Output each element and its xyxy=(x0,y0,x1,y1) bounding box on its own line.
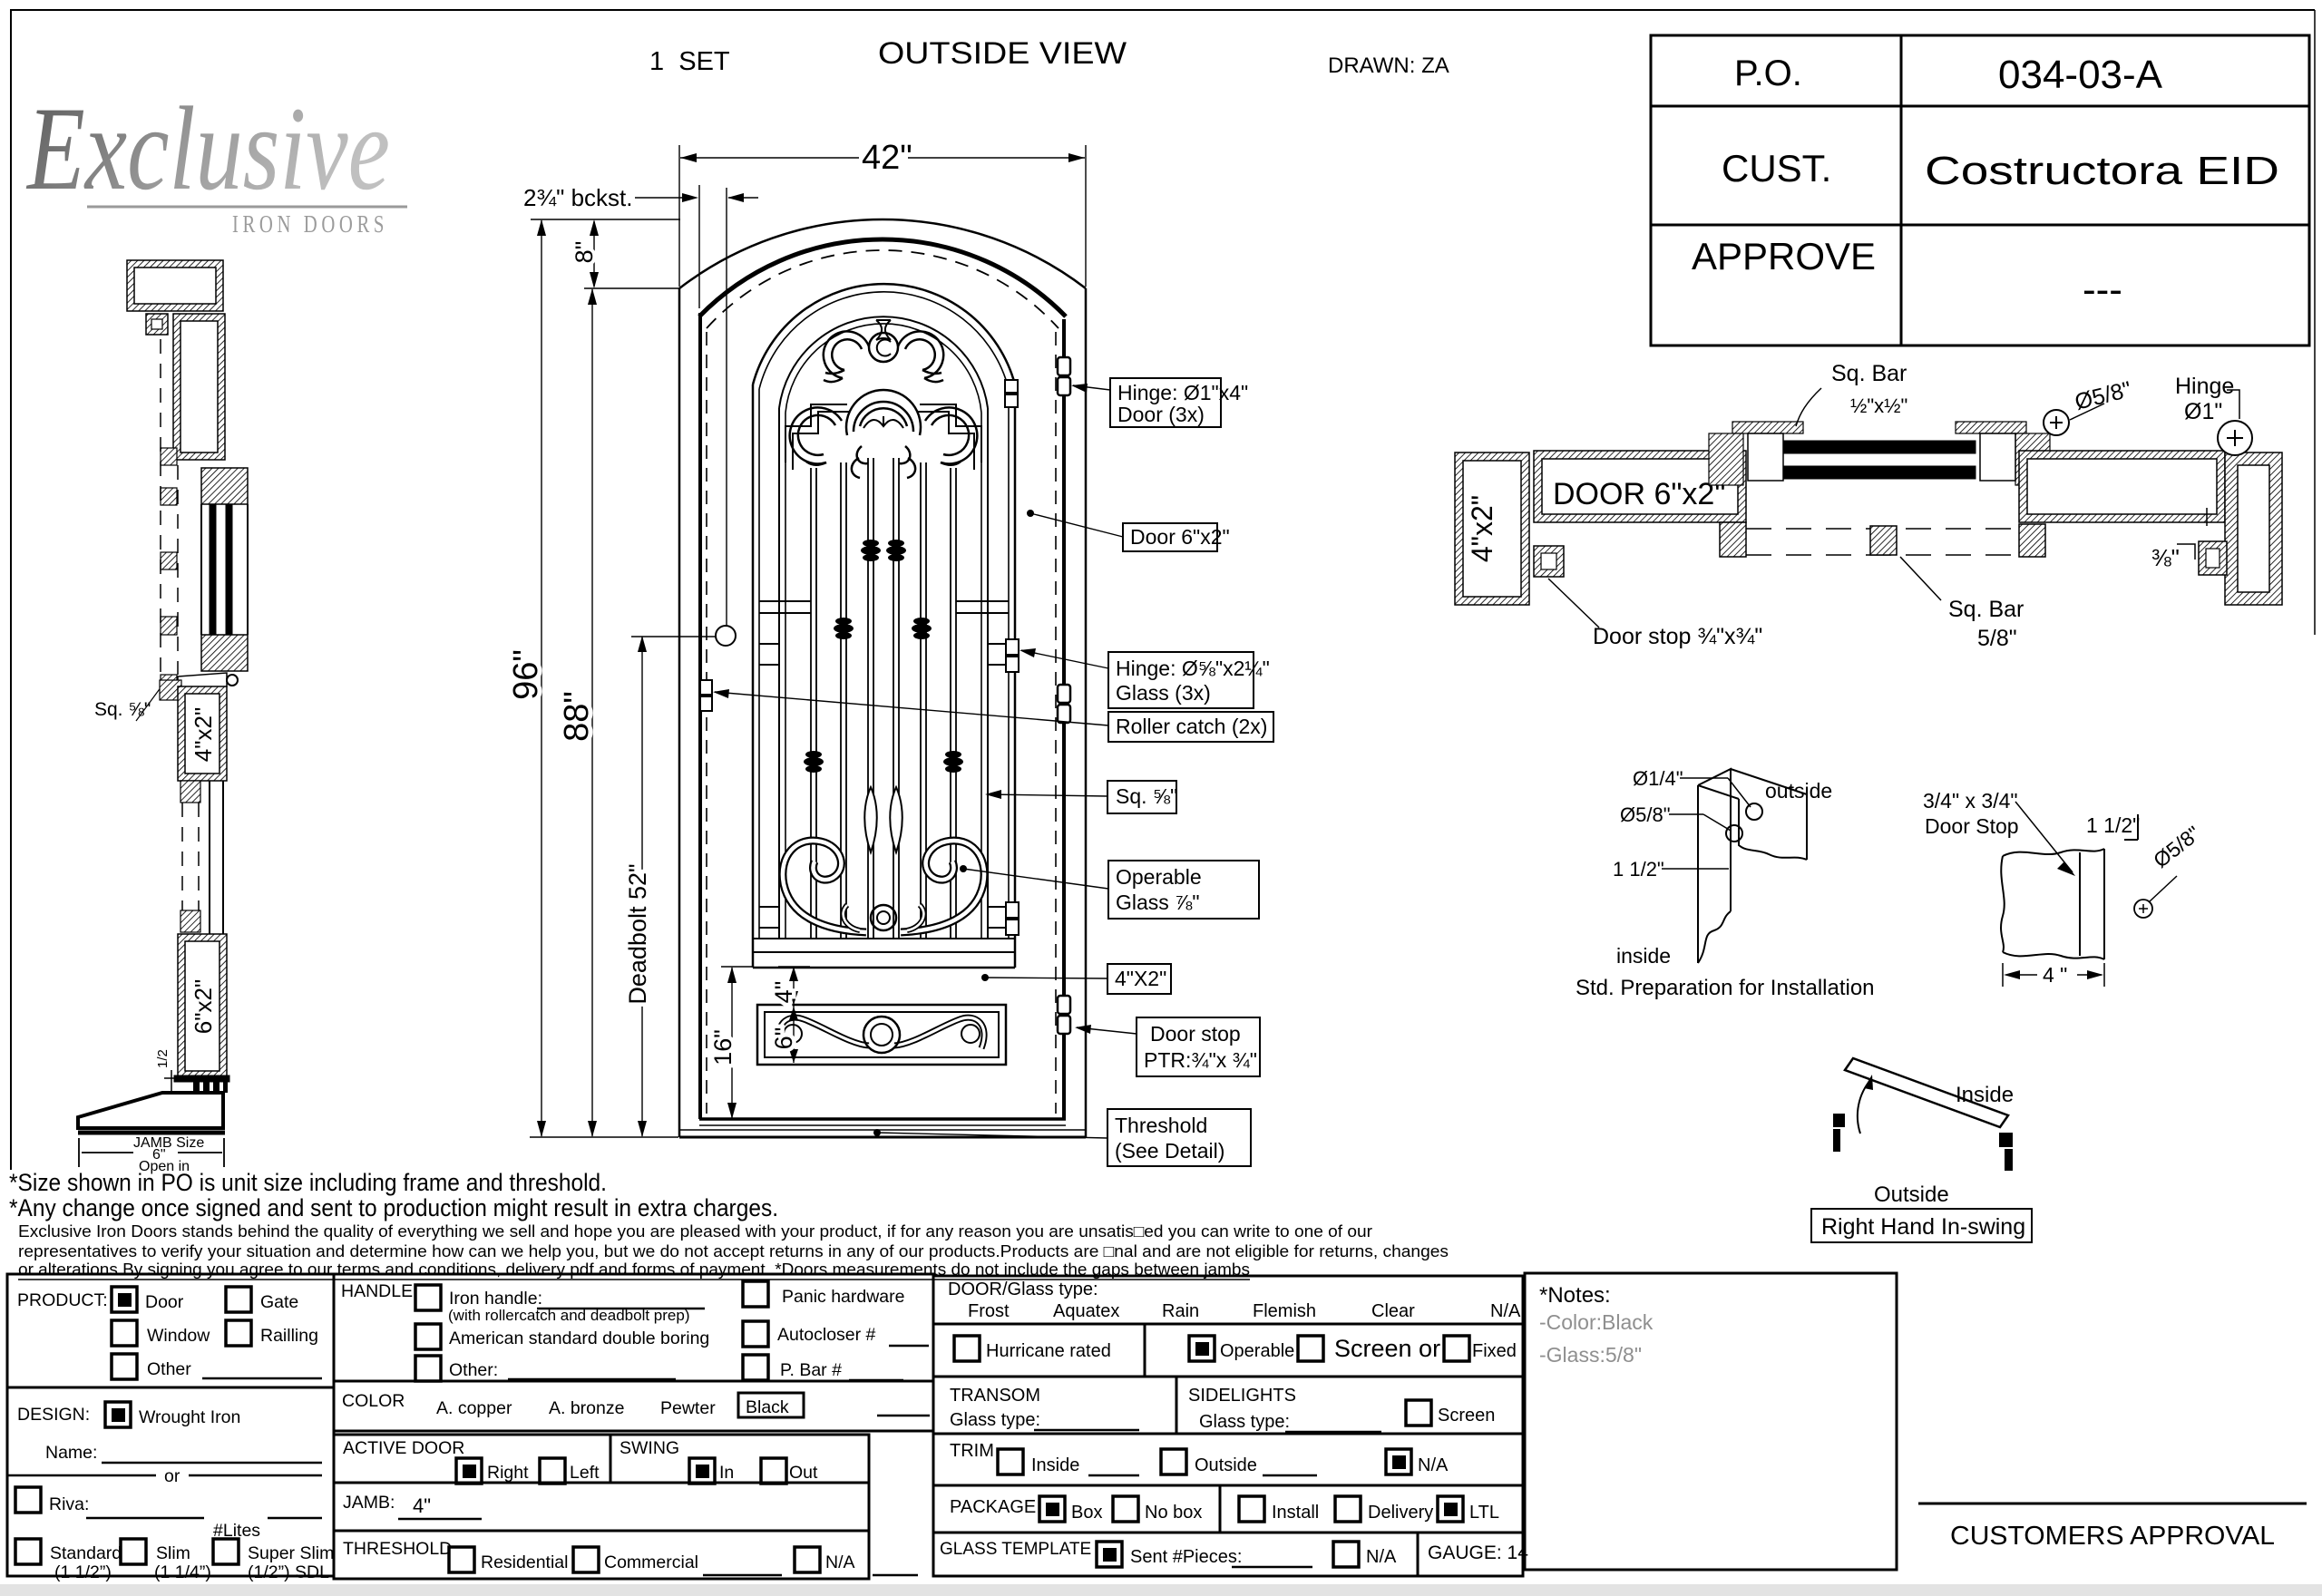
svg-text:Threshold: Threshold xyxy=(1115,1114,1207,1137)
svg-text:A. bronze: A. bronze xyxy=(549,1398,624,1418)
svg-text:Door stop: Door stop xyxy=(1150,1022,1241,1046)
svg-text:P.O.: P.O. xyxy=(1734,54,1802,93)
svg-text:inside: inside xyxy=(1616,944,1671,968)
svg-text:DOOR 6"x2": DOOR 6"x2" xyxy=(1553,477,1725,511)
svg-text:(See Detail): (See Detail) xyxy=(1115,1139,1224,1163)
svg-text:1/2: 1/2 xyxy=(155,1049,171,1068)
svg-text:Operable: Operable xyxy=(1220,1341,1294,1361)
svg-text:Sq. Bar: Sq. Bar xyxy=(1948,597,2024,622)
svg-text:Ø1/4": Ø1/4" xyxy=(1633,767,1683,790)
svg-text:(1 1/2”): (1 1/2”) xyxy=(54,1562,112,1582)
svg-text:Residential: Residential xyxy=(481,1552,568,1572)
svg-text:Sent #Pieces:: Sent #Pieces: xyxy=(1130,1547,1242,1567)
svg-text:DESIGN:: DESIGN: xyxy=(17,1405,90,1425)
svg-text:TRANSOM: TRANSOM xyxy=(950,1386,1040,1406)
svg-text:*Notes:: *Notes: xyxy=(1539,1283,1611,1308)
svg-text:THRESHOLD: THRESHOLD xyxy=(343,1539,452,1559)
svg-text:outside: outside xyxy=(1765,779,1832,803)
svg-text:In: In xyxy=(719,1463,734,1483)
svg-text:OUTSIDE VIEW: OUTSIDE VIEW xyxy=(878,36,1127,71)
svg-text:Glass type:: Glass type: xyxy=(1199,1412,1290,1432)
svg-text:6": 6" xyxy=(770,1027,797,1050)
svg-text:Ø1": Ø1" xyxy=(2184,399,2222,424)
svg-text:1 1/2": 1 1/2" xyxy=(2086,813,2140,837)
svg-text:Wrought Iron: Wrought Iron xyxy=(139,1407,240,1427)
svg-text:8": 8" xyxy=(571,241,598,264)
svg-text:P. Bar #: P. Bar # xyxy=(780,1360,842,1380)
svg-text:Railling: Railling xyxy=(260,1326,318,1346)
svg-text:Install: Install xyxy=(1272,1503,1319,1523)
svg-text:Aquatex: Aquatex xyxy=(1053,1301,1119,1321)
svg-text:Slim: Slim xyxy=(156,1543,190,1563)
svg-text:APPROVE: APPROVE xyxy=(1692,235,1876,277)
svg-text:Other: Other xyxy=(147,1359,191,1379)
svg-text:16": 16" xyxy=(709,1029,737,1066)
svg-text:Deadbolt 52": Deadbolt 52" xyxy=(624,863,651,1004)
svg-text:Standard: Standard xyxy=(50,1543,122,1563)
svg-text:1 1/2": 1 1/2" xyxy=(1613,858,1664,881)
svg-text:Black: Black xyxy=(746,1397,789,1417)
svg-text:4"x2": 4"x2" xyxy=(190,707,217,762)
svg-text:Gate: Gate xyxy=(260,1292,298,1312)
svg-text:Door (3x): Door (3x) xyxy=(1117,403,1205,426)
svg-text:Other:: Other: xyxy=(449,1360,498,1380)
svg-text:3/4" x 3/4": 3/4" x 3/4" xyxy=(1923,789,2018,813)
svg-text:N/A: N/A xyxy=(825,1552,855,1572)
svg-text:88": 88" xyxy=(558,691,596,742)
svg-text:Flemish: Flemish xyxy=(1253,1301,1316,1321)
svg-text:Riva:: Riva: xyxy=(49,1494,89,1514)
svg-text:Hinge: Ø⅝"x2¼": Hinge: Ø⅝"x2¼" xyxy=(1116,657,1270,680)
svg-text:*Any change once signed and se: *Any change once signed and sent to prod… xyxy=(9,1194,778,1221)
svg-text:Right Hand In-swing: Right Hand In-swing xyxy=(1821,1214,2025,1240)
svg-text:Outside: Outside xyxy=(1195,1455,1257,1475)
svg-text:Window: Window xyxy=(147,1326,210,1346)
svg-text:4": 4" xyxy=(413,1494,431,1517)
svg-text:Costructora EID: Costructora EID xyxy=(1925,149,2279,193)
svg-text:(1/2”) SDL: (1/2”) SDL xyxy=(248,1562,329,1582)
svg-text:-Glass:5/8": -Glass:5/8" xyxy=(1539,1343,1642,1367)
svg-text:HANDLE: HANDLE xyxy=(341,1281,413,1301)
svg-text:Sq. ⅝": Sq. ⅝" xyxy=(94,699,151,720)
svg-text:Fixed: Fixed xyxy=(1472,1341,1517,1361)
svg-text:PRODUCT:: PRODUCT: xyxy=(17,1290,108,1310)
svg-text:Super Slim: Super Slim xyxy=(248,1543,334,1563)
svg-text:No box: No box xyxy=(1145,1503,1202,1523)
svg-text:Hinge: Ø1"x4": Hinge: Ø1"x4" xyxy=(1117,381,1248,404)
svg-text:Hinge: Hinge xyxy=(2175,374,2234,399)
svg-text:Rain: Rain xyxy=(1162,1301,1199,1321)
svg-text:Clear: Clear xyxy=(1371,1301,1415,1321)
svg-text:TRIM: TRIM xyxy=(950,1441,994,1461)
svg-text:PACKAGE: PACKAGE xyxy=(950,1497,1036,1517)
svg-text:COLOR: COLOR xyxy=(342,1391,405,1411)
svg-text:PTR:¾"x ¾": PTR:¾"x ¾" xyxy=(1144,1048,1257,1072)
svg-text:96": 96" xyxy=(507,649,545,700)
svg-text:Glass (3x): Glass (3x) xyxy=(1116,681,1211,705)
svg-text:(1 1/4”): (1 1/4”) xyxy=(154,1562,211,1582)
svg-text:⅜": ⅜" xyxy=(2151,544,2180,571)
svg-text:Delivery: Delivery xyxy=(1368,1503,1433,1523)
svg-text:ACTIVE DOOR: ACTIVE DOOR xyxy=(343,1438,464,1458)
svg-text:JAMB:: JAMB: xyxy=(343,1493,395,1513)
svg-text:Sq. Bar: Sq. Bar xyxy=(1831,361,1907,386)
svg-text:Glass type:: Glass type: xyxy=(950,1410,1040,1430)
svg-text:-Color:Black: -Color:Black xyxy=(1539,1310,1654,1334)
svg-text:Operable: Operable xyxy=(1116,865,1202,889)
svg-text:4 ": 4 " xyxy=(2043,963,2067,987)
svg-text:Box: Box xyxy=(1071,1503,1102,1523)
svg-text:Ø5/8": Ø5/8" xyxy=(1620,803,1671,826)
svg-text:or: or xyxy=(164,1466,180,1486)
svg-text:DOOR/Glass type:: DOOR/Glass type: xyxy=(948,1280,1098,1299)
svg-text:A. copper: A. copper xyxy=(436,1398,512,1418)
svg-text:Exclusive Iron Doors stands be: Exclusive Iron Doors stands behind the q… xyxy=(18,1221,1372,1241)
svg-text:Exclusive: Exclusive xyxy=(25,82,390,215)
svg-text:Door 6"x2": Door 6"x2" xyxy=(1130,525,1230,549)
svg-text:5/8": 5/8" xyxy=(1977,626,2017,651)
svg-text:Left: Left xyxy=(570,1463,600,1483)
svg-text:---: --- xyxy=(2083,268,2122,312)
svg-text:Inside: Inside xyxy=(1956,1083,2014,1107)
svg-text:Out: Out xyxy=(789,1463,818,1483)
svg-text:*Size shown in PO is unit size: *Size shown in PO is unit size including… xyxy=(9,1169,607,1196)
svg-text:034-03-A: 034-03-A xyxy=(1998,53,2163,97)
svg-text:American standard double borin: American standard double boring xyxy=(449,1328,709,1348)
svg-text:Roller catch (2x): Roller catch (2x) xyxy=(1116,715,1267,738)
svg-text:(with rollercatch and deadbolt: (with rollercatch and deadbolt prep) xyxy=(448,1307,689,1324)
svg-text:Screen: Screen xyxy=(1438,1406,1495,1426)
svg-text:Glass ⅞": Glass ⅞" xyxy=(1116,890,1200,914)
svg-text:Commercial: Commercial xyxy=(604,1552,698,1572)
svg-text:4": 4" xyxy=(770,981,797,1004)
svg-text:N/A: N/A xyxy=(1490,1301,1521,1321)
svg-text:Right: Right xyxy=(487,1463,529,1483)
svg-text:Autocloser #: Autocloser # xyxy=(777,1325,876,1345)
svg-text:Pewter: Pewter xyxy=(660,1398,716,1418)
svg-text:Inside: Inside xyxy=(1031,1455,1079,1475)
svg-text:Frost: Frost xyxy=(968,1301,1010,1321)
svg-text:representatives to verify your: representatives to verify your situation… xyxy=(18,1241,1449,1260)
svg-text:LTL: LTL xyxy=(1469,1503,1499,1523)
svg-text:2¾" bckst.: 2¾" bckst. xyxy=(523,184,633,211)
svg-text:Std. Preparation for Installat: Std. Preparation for Installation xyxy=(1576,976,1875,1000)
svg-text:JAMB Size: JAMB Size xyxy=(133,1135,204,1151)
svg-text:4"x2": 4"x2" xyxy=(1466,495,1498,562)
svg-text:SIDELIGHTS: SIDELIGHTS xyxy=(1188,1386,1296,1406)
svg-text:GAUGE: 14: GAUGE: 14 xyxy=(1428,1542,1528,1563)
svg-text:Door: Door xyxy=(145,1292,184,1312)
svg-text:DRAWN: ZA: DRAWN: ZA xyxy=(1328,54,1449,78)
svg-text:CUST.: CUST. xyxy=(1722,147,1831,190)
svg-text:SWING: SWING xyxy=(620,1438,679,1458)
svg-text:CUSTOMERS APPROVAL: CUSTOMERS APPROVAL xyxy=(1950,1522,2275,1551)
svg-text:GLASS TEMPLATE: GLASS TEMPLATE xyxy=(940,1540,1091,1559)
svg-text:Iron handle:: Iron handle: xyxy=(449,1289,542,1309)
svg-text:Door stop ¾"x¾": Door stop ¾"x¾" xyxy=(1593,624,1762,649)
svg-text:4"X2": 4"X2" xyxy=(1115,967,1166,990)
svg-text:6"x2": 6"x2" xyxy=(190,979,217,1034)
svg-text:N/A: N/A xyxy=(1418,1455,1449,1475)
svg-text:42": 42" xyxy=(862,139,912,177)
svg-text:1 SET: 1 SET xyxy=(649,47,730,76)
svg-text:IRON DOORS: IRON DOORS xyxy=(232,210,388,238)
svg-text:Door Stop: Door Stop xyxy=(1925,814,2019,838)
svg-text:Name:: Name: xyxy=(45,1443,97,1463)
svg-text:Hurricane rated: Hurricane rated xyxy=(986,1341,1111,1361)
svg-text:N/A: N/A xyxy=(1366,1547,1397,1567)
svg-text:Outside: Outside xyxy=(1874,1182,1949,1207)
svg-text:Panic hardware: Panic hardware xyxy=(782,1287,905,1307)
svg-text:Sq. ⅝": Sq. ⅝" xyxy=(1116,784,1177,808)
svg-text:½"x½": ½"x½" xyxy=(1850,394,1907,417)
svg-text:Screen or: Screen or xyxy=(1334,1335,1440,1362)
